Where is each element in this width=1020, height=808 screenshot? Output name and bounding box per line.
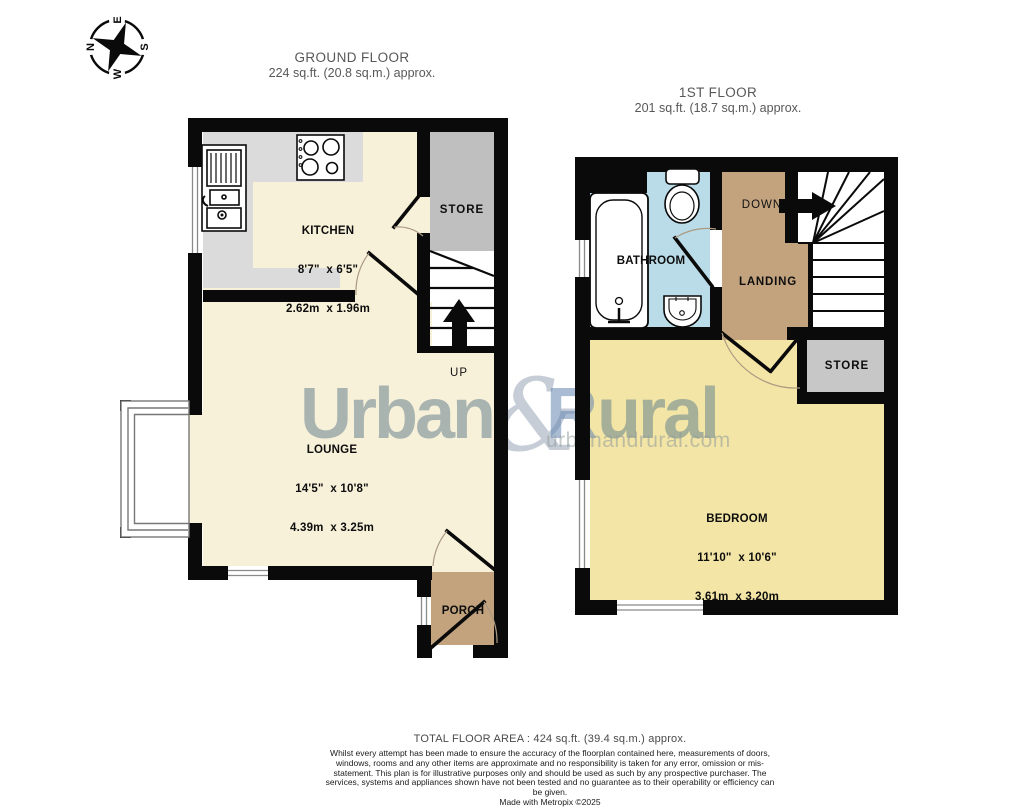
disclaimer-text: Whilst every attempt has been made to en… [320,749,780,798]
compass-s: S [139,43,151,50]
kitchen-label: KITCHEN 8'7" x 6'5" 2.62m x 1.96m [286,199,370,329]
landing-label: LANDING [739,276,797,289]
lounge-label: LOUNGE 14'5" x 10'8" 4.39m x 3.25m [290,418,374,548]
footer: TOTAL FLOOR AREA : 424 sq.ft. (39.4 sq.m… [320,733,780,808]
up-label: UP [450,367,468,379]
bedroom-bottom-window [617,601,703,614]
bay-window [121,401,189,537]
bedroom-left-window [575,480,590,568]
kitchen-door-gap [417,197,430,233]
bay-left-wall-gap [188,412,203,526]
first-floor-title: 1ST FLOOR [568,85,868,100]
straight-stairs-floor [810,243,884,327]
floorplan-page: { "compass": {"n": "N", "e": "E", "s": "… [0,0,1020,808]
bathroom-label: BATHROOM [617,255,685,268]
down-label: DOWN [742,199,782,211]
kitchen-window [188,167,202,253]
store-ground-label: STORE [440,204,484,217]
landing-doorway [722,327,787,340]
porch-front-door-gap [432,645,473,658]
bathroom-window [575,240,590,277]
compass-n: N [85,43,97,51]
lounge-bottom-window [228,566,268,580]
ground-floor-area: 224 sq.ft. (20.8 sq.m.) approx. [202,66,502,80]
made-with-credit: Made with Metropix ©2025 [320,798,780,808]
store-first-label: STORE [825,360,869,373]
compass-w: W [112,68,124,79]
compass-rose: N E S W [72,2,162,92]
floorplan-canvas: Urban & R ural urbanandrural.com [0,0,1020,808]
compass-e: E [112,16,124,23]
total-floor-area: TOTAL FLOOR AREA : 424 sq.ft. (39.4 sq.m… [320,733,780,745]
first-floor-heading: 1ST FLOOR 201 sq.ft. (18.7 sq.m.) approx… [568,85,868,115]
ground-floor-title: GROUND FLOOR [202,50,502,65]
porch-window [417,597,431,625]
ground-floor-heading: GROUND FLOOR 224 sq.ft. (20.8 sq.m.) app… [202,50,502,80]
watermark-domain: urbanandrural.com [546,429,731,452]
toilet [665,169,699,223]
hob [297,135,344,180]
kitchen-sink [202,145,246,231]
bedroom-label: BEDROOM 11'10" x 10'6" 3.61m x 3.20m [695,487,779,617]
porch-label: PORCH [442,605,485,618]
first-floor-area: 201 sq.ft. (18.7 sq.m.) approx. [568,101,868,115]
basin [664,296,701,327]
